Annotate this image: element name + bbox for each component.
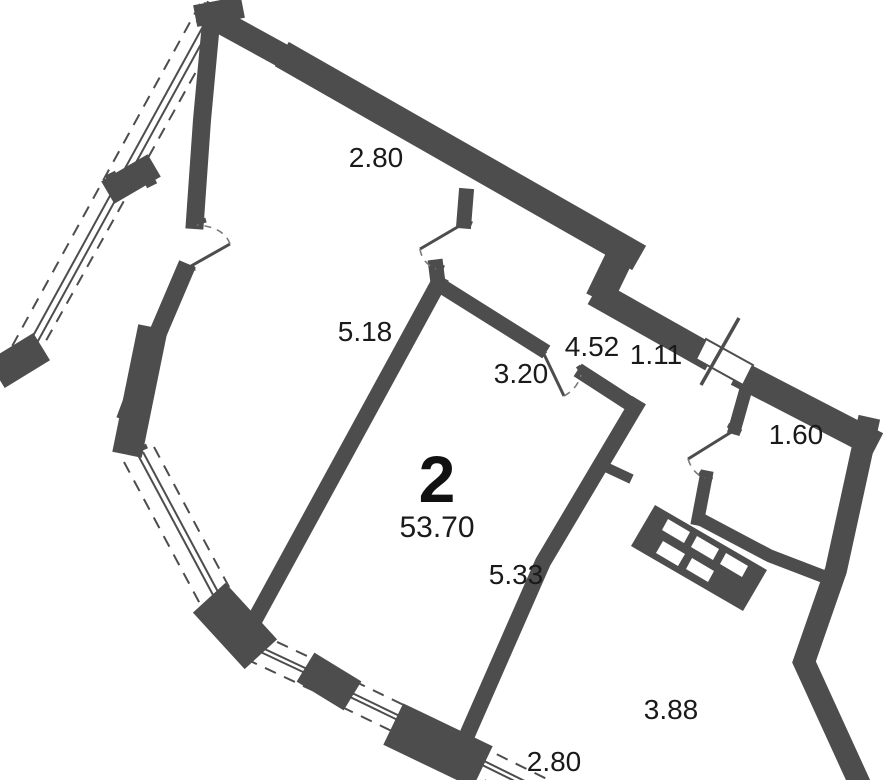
dim-bathroom: 1.60 [769, 419, 824, 450]
dim-bottom-wall: 2.80 [527, 746, 582, 777]
dim-center-room-length: 5.33 [489, 559, 544, 590]
balcony-end-wall-bottom [10, 355, 28, 366]
dim-hallway-length: 4.52 [565, 331, 620, 362]
floor-plan-page: 2.80 5.18 3.20 4.52 1.11 1.60 2 53.70 5.… [0, 0, 885, 780]
total-area-label: 53.70 [399, 511, 474, 544]
dim-top-wall: 2.80 [349, 142, 404, 173]
wall-stub [612, 470, 627, 477]
left-outer-wall-foot [130, 342, 150, 440]
floor-plan: 2.80 5.18 3.20 4.52 1.11 1.60 2 53.70 5.… [0, 0, 885, 780]
dim-left-room: 5.18 [338, 316, 393, 347]
window-pier [320, 676, 338, 687]
dim-center-room-width: 3.20 [494, 358, 549, 389]
top-wall-step [605, 252, 622, 287]
dim-right-room: 3.88 [644, 694, 699, 725]
rooms-count-label: 2 [419, 442, 456, 516]
dim-hallway-width: 1.11 [630, 339, 682, 370]
hall-leftroom-wall [464, 196, 466, 221]
balcony-mid-pier [119, 172, 143, 186]
